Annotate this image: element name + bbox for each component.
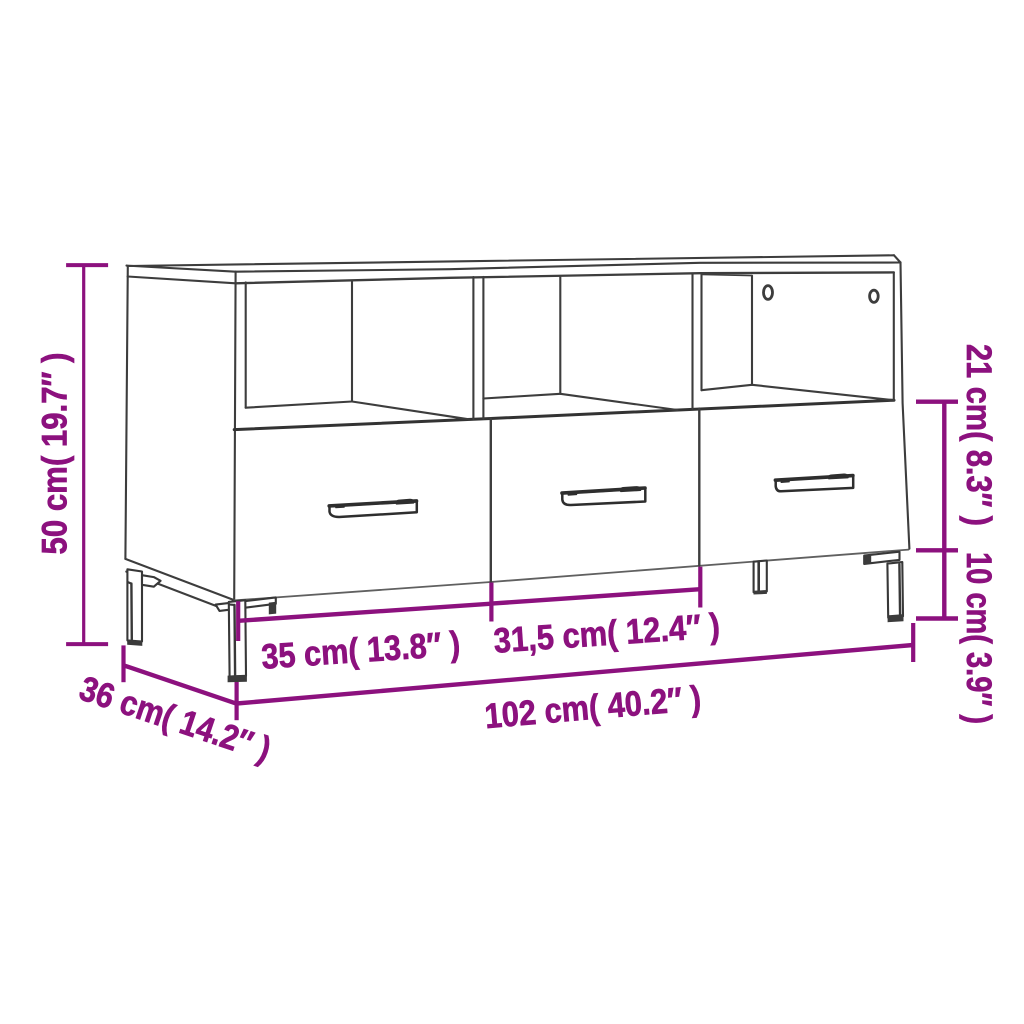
svg-text:10 cm( 3.9″ ): 10 cm( 3.9″ ) (959, 552, 998, 724)
svg-text:35 cm( 13.8″ ): 35 cm( 13.8″ ) (260, 624, 461, 676)
svg-text:21 cm( 8.3″ ): 21 cm( 8.3″ ) (959, 344, 998, 526)
svg-text:31,5 cm( 12.4″ ): 31,5 cm( 12.4″ ) (492, 606, 721, 660)
svg-text:50 cm( 19.7″ ): 50 cm( 19.7″ ) (36, 353, 75, 555)
svg-text:102 cm( 40.2″ ): 102 cm( 40.2″ ) (483, 679, 703, 736)
